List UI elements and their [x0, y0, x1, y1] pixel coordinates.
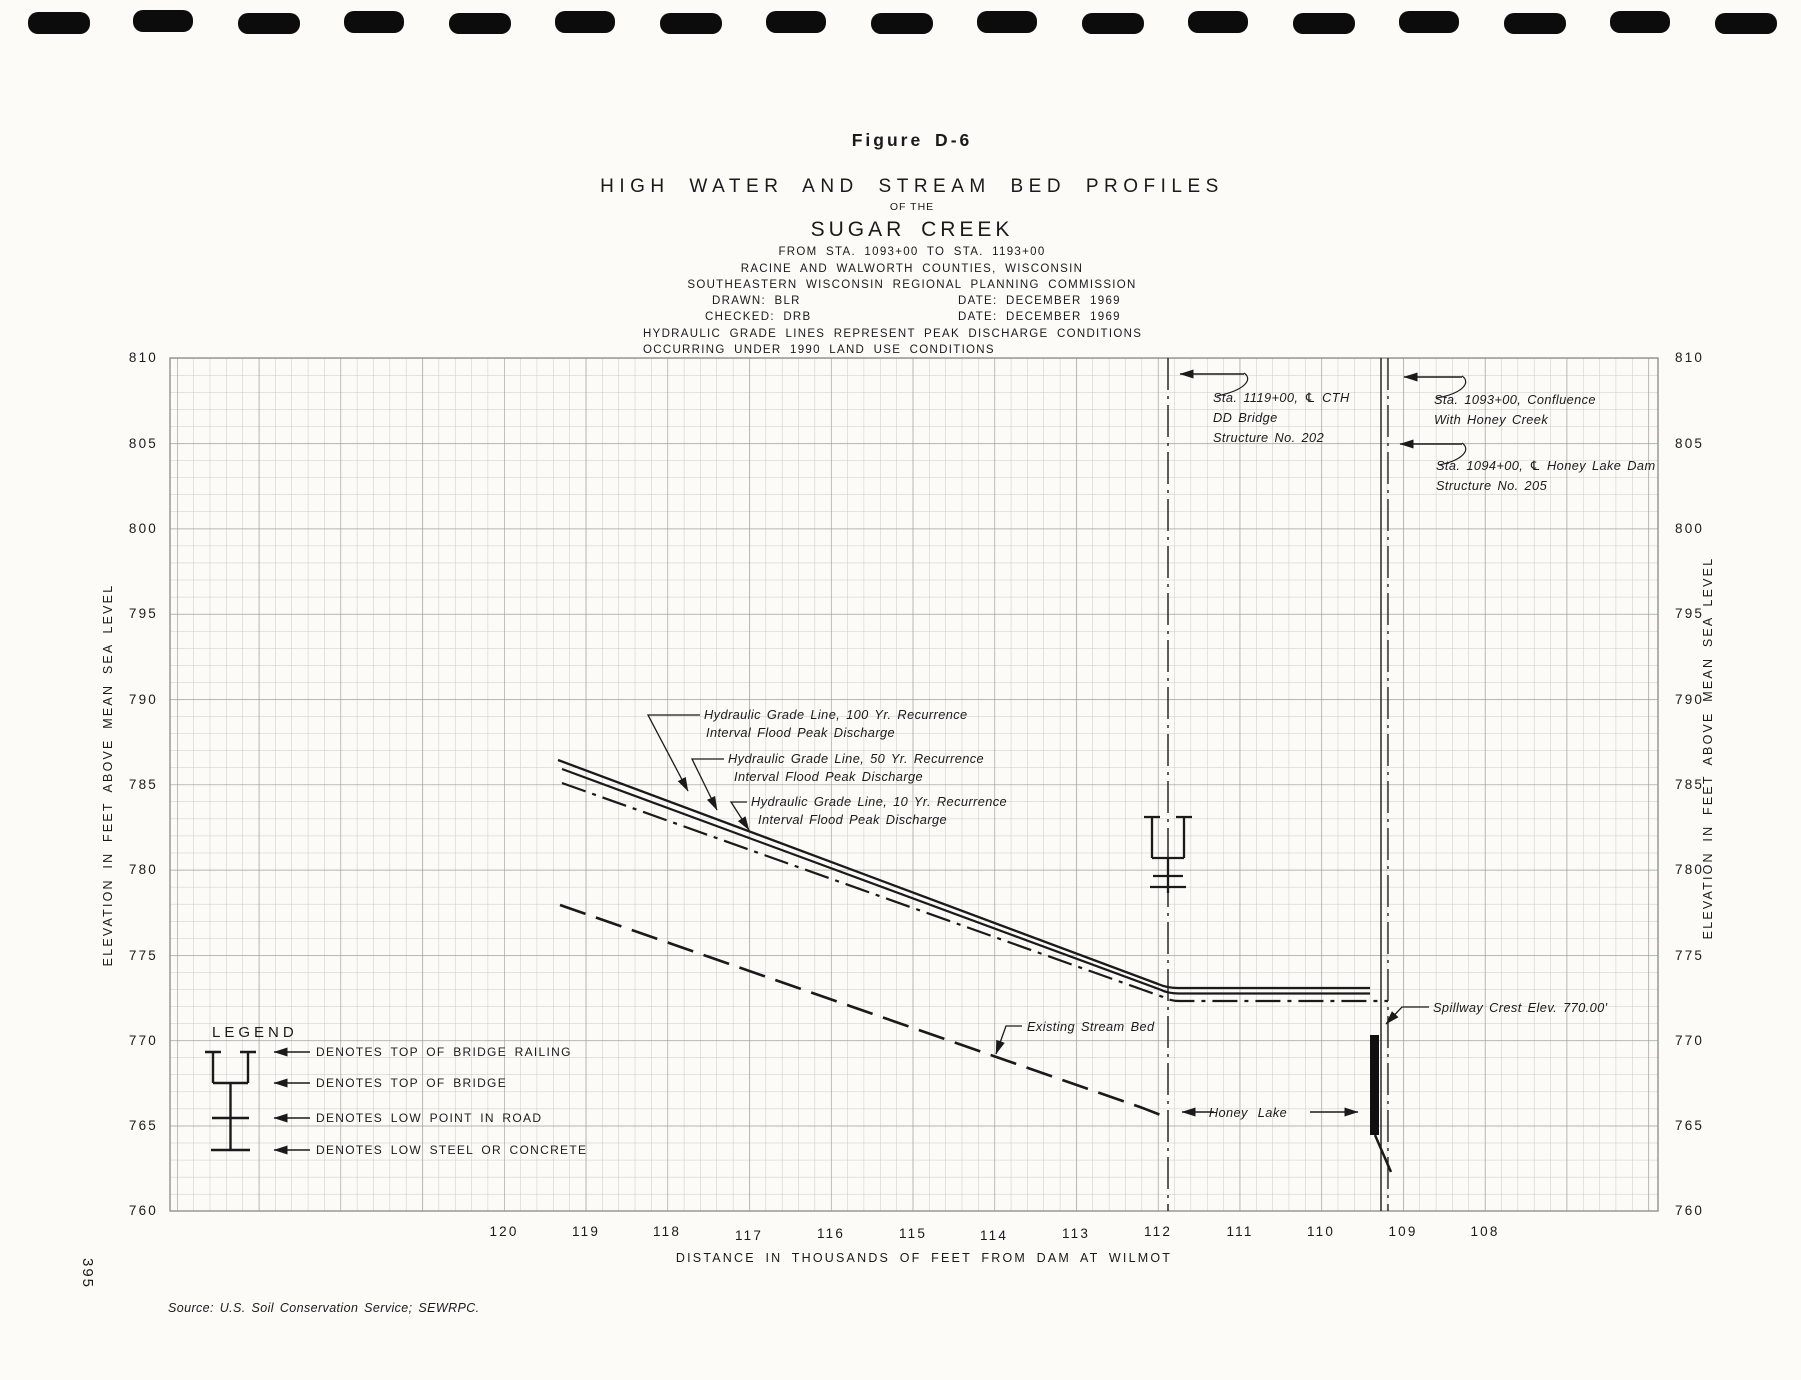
x-axis-title: DISTANCE IN THOUSANDS OF FEET FROM DAM A…: [676, 1251, 1172, 1265]
hgl100-label-1: Hydraulic Grade Line, 100 Yr. Recurrence: [704, 707, 968, 722]
honey-lake-label: Honey Lake: [1209, 1105, 1287, 1120]
sta-bridge-label-3: Structure No. 202: [1213, 430, 1324, 445]
hgl100-label-2: Interval Flood Peak Discharge: [706, 725, 895, 740]
footer: 395 Source: U.S. Soil Conservation Servi…: [79, 1258, 480, 1315]
figure-number: Figure D-6: [852, 130, 973, 150]
checked-by: CHECKED: DRB: [705, 311, 812, 323]
legend-item-3: DENOTES LOW POINT IN ROAD: [316, 1111, 542, 1125]
x-tick-label: 118: [653, 1224, 681, 1239]
sta-dam-label-1: Sta. 1094+00, ℄ Honey Lake Dam: [1436, 458, 1656, 473]
x-tick-label: 109: [1388, 1224, 1417, 1239]
y-tick-label: 785: [129, 777, 158, 792]
note-line-2: OCCURRING UNDER 1990 LAND USE CONDITIONS: [643, 344, 995, 356]
y-tick-label: 790: [129, 692, 158, 707]
sta-confluence-label-1: Sta. 1093+00, Confluence: [1434, 392, 1596, 407]
drawn-by: DRAWN: BLR: [712, 295, 801, 307]
spillway-label: Spillway Crest Elev. 770.00': [1433, 1000, 1608, 1015]
sta-dam-label-2: Structure No. 205: [1436, 478, 1548, 493]
sta-bridge-label-1: Sta. 1119+00, ℄ CTH: [1213, 390, 1350, 405]
y-tick-label: 810: [129, 350, 158, 365]
commission-line: SOUTHEASTERN WISCONSIN REGIONAL PLANNING…: [687, 279, 1136, 291]
figure-canvas: Figure D-6 HIGH WATER AND STREAM BED PRO…: [0, 0, 1801, 1380]
main-title: HIGH WATER AND STREAM BED PROFILES: [600, 176, 1224, 197]
x-tick-label: 117: [735, 1228, 763, 1243]
y-tick-label: 810: [1675, 350, 1704, 365]
y-tick-label: 795: [1675, 606, 1704, 621]
hgl50-label-2: Interval Flood Peak Discharge: [734, 769, 923, 784]
y-tick-label: 780: [129, 862, 158, 877]
y-tick-label: 780: [1675, 862, 1704, 877]
y-axis-title-right: ELEVATION IN FEET ABOVE MEAN SEA LEVEL: [1701, 557, 1715, 940]
y-axis-left: 810 805 800 795 790 785 780 775 770 765 …: [101, 350, 158, 1218]
x-tick-label: 120: [489, 1224, 518, 1239]
hgl50-label-1: Hydraulic Grade Line, 50 Yr. Recurrence: [728, 751, 984, 766]
y-tick-label: 800: [129, 521, 158, 536]
y-axis-right: 810 805 800 795 790 785 780 775 770 765 …: [1675, 350, 1715, 1218]
drawn-date: DATE: DECEMBER 1969: [958, 295, 1121, 307]
y-tick-label: 805: [129, 436, 158, 451]
station-range: FROM STA. 1093+00 TO STA. 1193+00: [778, 246, 1045, 258]
legend-item-2: DENOTES TOP OF BRIDGE: [316, 1076, 507, 1090]
scanned-profile-sheet: Figure D-6 HIGH WATER AND STREAM BED PRO…: [0, 0, 1801, 1380]
page-number: 395: [79, 1258, 96, 1289]
x-tick-label: 108: [1470, 1224, 1499, 1239]
x-axis: 120 119 118 117 116 115 114 113 112 111 …: [489, 1224, 1499, 1265]
sta-bridge-label-2: DD Bridge: [1213, 410, 1278, 425]
legend-item-4: DENOTES LOW STEEL OR CONCRETE: [316, 1143, 587, 1157]
subject-title: SUGAR CREEK: [811, 218, 1014, 241]
x-tick-label: 112: [1144, 1224, 1172, 1239]
title-block: Figure D-6 HIGH WATER AND STREAM BED PRO…: [600, 130, 1224, 356]
dam-spillway-bar: [1370, 1035, 1379, 1135]
binder-perforation-marks: [28, 10, 1777, 34]
y-tick-label: 805: [1675, 436, 1704, 451]
y-tick-label: 795: [129, 606, 158, 621]
y-tick-label: 790: [1675, 692, 1704, 707]
x-tick-label: 119: [572, 1224, 600, 1239]
x-tick-label: 115: [899, 1226, 927, 1241]
y-tick-label: 775: [129, 948, 158, 963]
y-tick-label: 760: [129, 1203, 158, 1218]
y-tick-label: 775: [1675, 948, 1704, 963]
y-tick-label: 770: [129, 1033, 158, 1048]
y-axis-title-left: ELEVATION IN FEET ABOVE MEAN SEA LEVEL: [101, 584, 115, 967]
stream-bed-label: Existing Stream Bed: [1027, 1019, 1155, 1034]
source-note: Source: U.S. Soil Conservation Service; …: [168, 1301, 480, 1315]
x-tick-label: 116: [817, 1226, 845, 1241]
y-tick-label: 765: [129, 1118, 158, 1133]
checked-date: DATE: DECEMBER 1969: [958, 311, 1121, 323]
legend-title: LEGEND: [212, 1024, 298, 1041]
x-tick-label: 113: [1062, 1226, 1090, 1241]
counties-line: RACINE AND WALWORTH COUNTIES, WISCONSIN: [741, 263, 1084, 275]
y-tick-label: 785: [1675, 777, 1704, 792]
hgl10-label-1: Hydraulic Grade Line, 10 Yr. Recurrence: [751, 794, 1007, 809]
legend-item-1: DENOTES TOP OF BRIDGE RAILING: [316, 1045, 572, 1059]
x-tick-label: 111: [1226, 1224, 1253, 1239]
sta-confluence-label-2: With Honey Creek: [1434, 412, 1548, 427]
x-tick-label: 114: [980, 1228, 1008, 1243]
y-tick-label: 770: [1675, 1033, 1704, 1048]
note-line-1: HYDRAULIC GRADE LINES REPRESENT PEAK DIS…: [643, 328, 1142, 340]
y-tick-label: 800: [1675, 521, 1704, 536]
x-tick-label: 110: [1307, 1224, 1335, 1239]
y-tick-label: 760: [1675, 1203, 1704, 1218]
of-the: OF THE: [890, 201, 934, 213]
y-tick-label: 765: [1675, 1118, 1704, 1133]
hgl10-label-2: Interval Flood Peak Discharge: [758, 812, 947, 827]
